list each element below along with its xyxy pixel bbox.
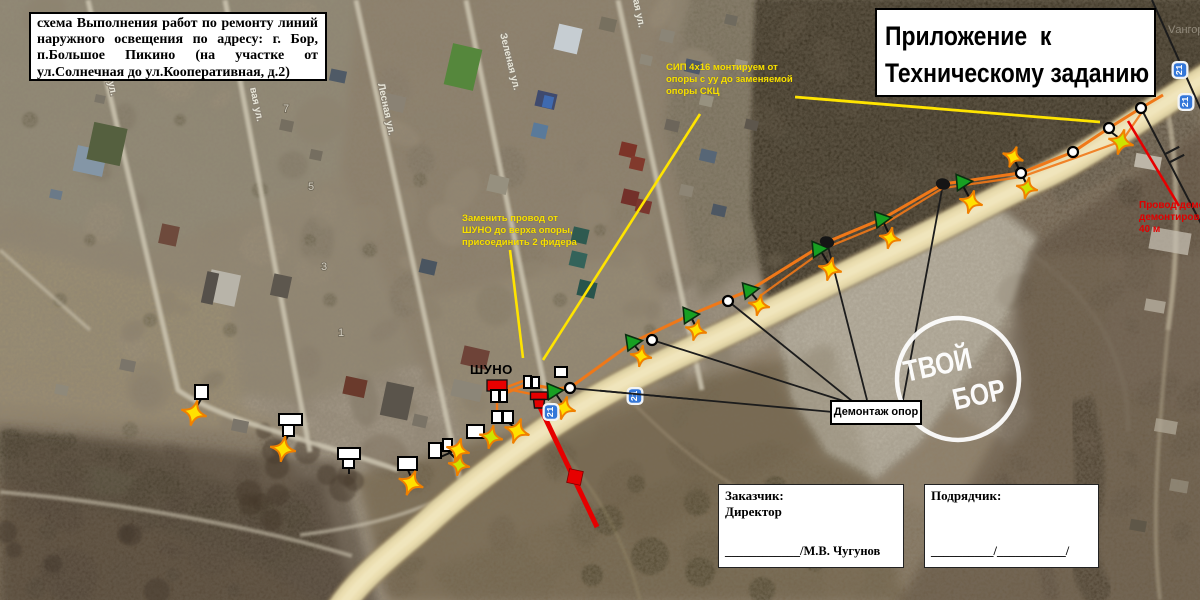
svg-text:3: 3 [321,261,327,273]
svg-text:Vангород: Vангород [1168,24,1200,36]
svg-text:21: 21 [546,406,556,417]
svg-text:1: 1 [338,327,344,339]
svg-text:7: 7 [283,103,289,115]
svg-text:21: 21 [1181,96,1191,107]
svg-text:21: 21 [630,390,640,401]
svg-text:21: 21 [1175,64,1185,75]
svg-text:5: 5 [308,181,314,193]
